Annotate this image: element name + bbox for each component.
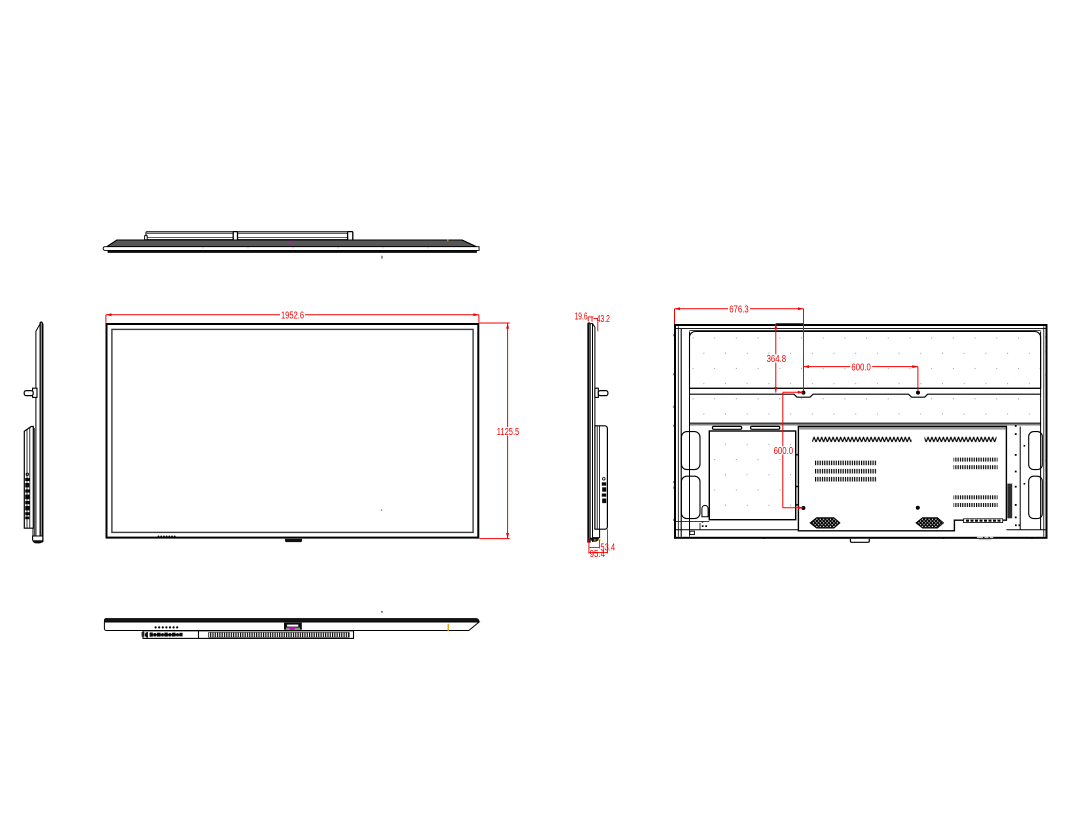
svg-text:364.8: 364.8 bbox=[767, 354, 787, 365]
svg-text:95.4: 95.4 bbox=[590, 549, 606, 560]
svg-text:43.2: 43.2 bbox=[597, 314, 610, 325]
svg-text:19.6: 19.6 bbox=[575, 312, 588, 323]
svg-text:600.0: 600.0 bbox=[851, 362, 871, 373]
svg-text:600.0: 600.0 bbox=[774, 446, 794, 457]
svg-text:1952.6: 1952.6 bbox=[281, 310, 304, 321]
svg-text:1125.5: 1125.5 bbox=[497, 427, 520, 438]
svg-text:676.3: 676.3 bbox=[729, 304, 749, 315]
